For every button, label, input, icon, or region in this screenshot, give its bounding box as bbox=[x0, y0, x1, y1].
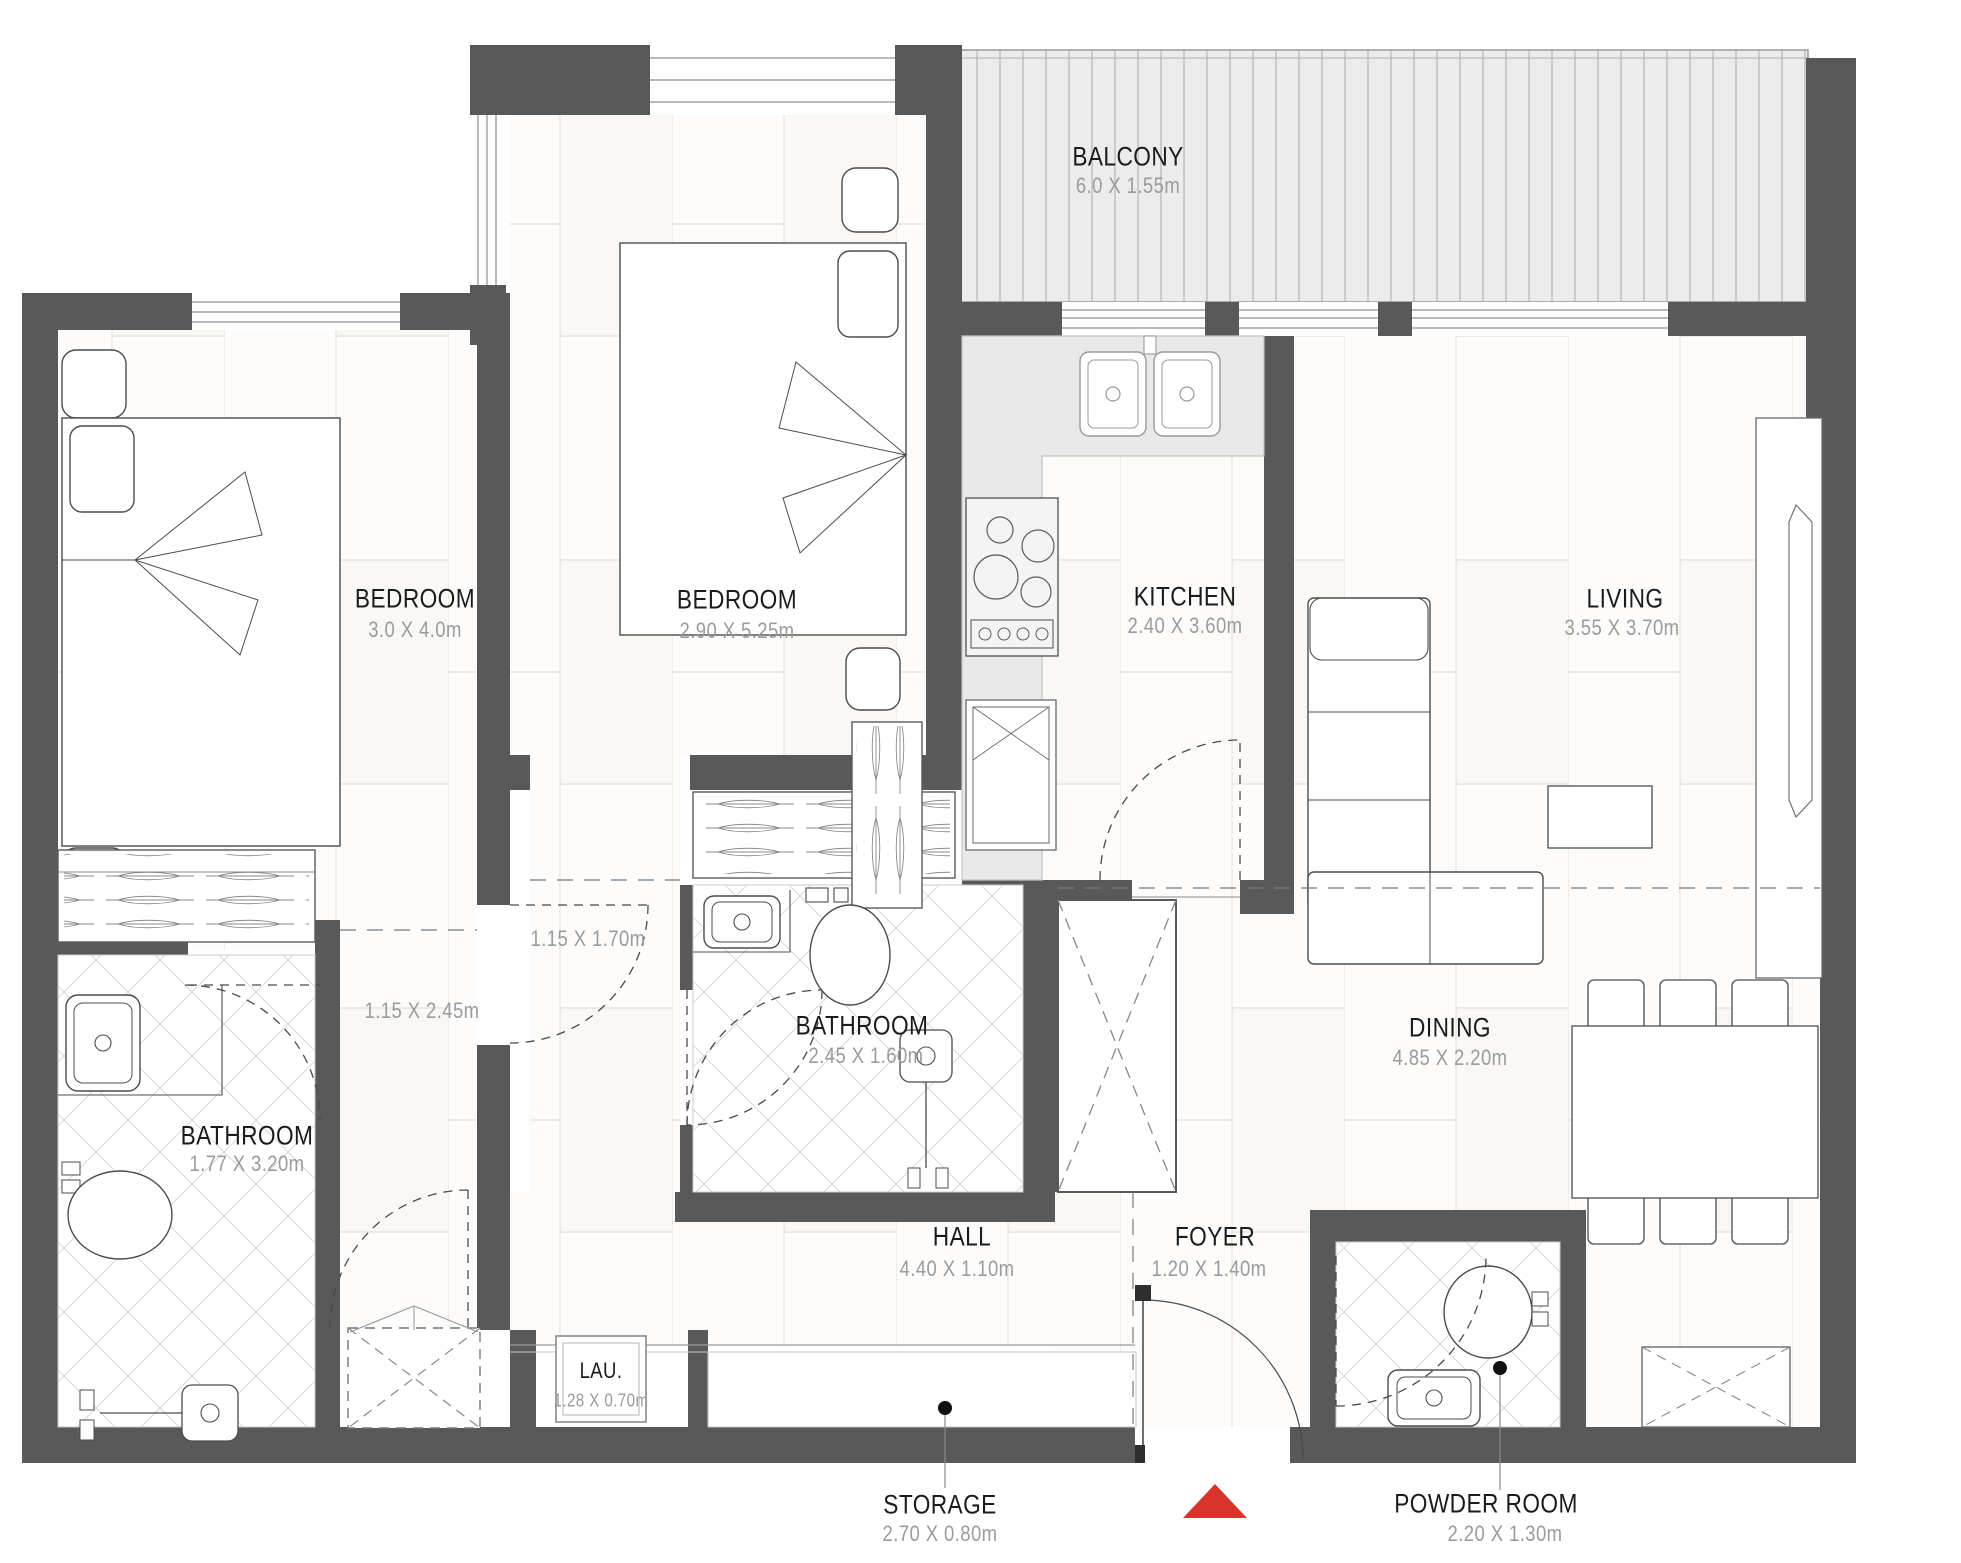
corridor-dims-b: 1.15 X 2.45m bbox=[365, 998, 480, 1024]
room-label-living: LIVING bbox=[1587, 584, 1664, 615]
room-label-balcony: BALCONY bbox=[1072, 142, 1183, 173]
room-dims-foyer: 1.20 X 1.40m bbox=[1152, 1256, 1267, 1282]
room-label-dining: DINING bbox=[1409, 1013, 1491, 1044]
window-bedroom-mid-top bbox=[650, 45, 895, 115]
stove-icon bbox=[966, 498, 1058, 656]
nightstand-icon bbox=[846, 648, 900, 710]
room-label-kitchen: KITCHEN bbox=[1134, 582, 1236, 613]
room-dims-bathroom-mid: 2.45 X 1.60m bbox=[809, 1043, 924, 1069]
room-label-powder-room: POWDER ROOM bbox=[1394, 1489, 1578, 1520]
bed-left bbox=[62, 350, 340, 916]
room-label-laundry: LAU. bbox=[580, 1358, 623, 1384]
room-label-storage: STORAGE bbox=[883, 1490, 996, 1521]
room-label-bedroom-mid: BEDROOM bbox=[677, 585, 797, 616]
shaft-bottom-right bbox=[1642, 1347, 1790, 1427]
room-dims-storage: 2.70 X 0.80m bbox=[883, 1521, 998, 1547]
room-dims-hall: 4.40 X 1.10m bbox=[900, 1256, 1015, 1282]
cistern-icon bbox=[806, 888, 828, 902]
floor-plan: BALCONY 6.0 X 1.55m BEDROOM 3.0 X 4.0m B… bbox=[0, 0, 1961, 1563]
room-dims-bedroom-left: 3.0 X 4.0m bbox=[368, 617, 462, 643]
room-dims-powder-room: 2.20 X 1.30m bbox=[1448, 1521, 1563, 1547]
room-label-bathroom-left: BATHROOM bbox=[181, 1121, 314, 1152]
sink-icon bbox=[66, 995, 140, 1091]
room-label-hall: HALL bbox=[933, 1222, 991, 1253]
toilet-icon bbox=[68, 1171, 172, 1259]
nightstand-icon bbox=[62, 350, 126, 418]
window-living-balcony-2 bbox=[1239, 302, 1378, 336]
room-label-bathroom-mid: BATHROOM bbox=[796, 1011, 929, 1042]
dining-set bbox=[1572, 980, 1818, 1244]
room-label-foyer: FOYER bbox=[1175, 1222, 1255, 1253]
corridor-dims-a: 1.15 X 1.70m bbox=[531, 926, 646, 952]
wardrobe-left-bedroom bbox=[58, 850, 315, 942]
coffee-table-icon bbox=[1548, 786, 1652, 848]
pillow-icon bbox=[70, 426, 134, 512]
room-dims-dining: 4.85 X 2.20m bbox=[1393, 1045, 1508, 1071]
room-label-bedroom-left: BEDROOM bbox=[355, 584, 475, 615]
room-dims-bedroom-mid: 2.90 X 5.25m bbox=[680, 618, 795, 644]
room-dims-laundry: 1.28 X 0.70m bbox=[554, 1391, 649, 1412]
tv-console-icon bbox=[1756, 418, 1822, 978]
window-living-balcony-3 bbox=[1412, 302, 1668, 336]
shaft-mid bbox=[1058, 900, 1176, 1192]
toilet-icon bbox=[1444, 1266, 1532, 1358]
sink-icon bbox=[1388, 1370, 1480, 1426]
wardrobe-mid-bedroom bbox=[852, 722, 922, 908]
pillow-icon bbox=[838, 251, 898, 337]
room-dims-balcony: 6.0 X 1.55m bbox=[1076, 173, 1180, 199]
cistern-icon bbox=[1532, 1292, 1548, 1306]
window-living-balcony-1 bbox=[1062, 302, 1205, 336]
shower-icon bbox=[182, 1385, 238, 1441]
room-dims-kitchen: 2.40 X 3.60m bbox=[1128, 613, 1243, 639]
floor-plan-drawing bbox=[0, 0, 1961, 1563]
kitchen-appliance-icon bbox=[966, 700, 1056, 850]
entrance-arrow-icon bbox=[1183, 1484, 1247, 1518]
shaft-corridor bbox=[348, 1306, 480, 1428]
dining-table-icon bbox=[1572, 1026, 1818, 1198]
nightstand-icon bbox=[842, 168, 898, 232]
cistern-icon bbox=[62, 1162, 80, 1175]
room-dims-living: 3.55 X 3.70m bbox=[1565, 615, 1680, 641]
room-dims-bathroom-left: 1.77 X 3.20m bbox=[190, 1151, 305, 1177]
window-bedroom-left-top bbox=[192, 293, 400, 330]
window-bedroom-mid-left bbox=[470, 115, 506, 285]
